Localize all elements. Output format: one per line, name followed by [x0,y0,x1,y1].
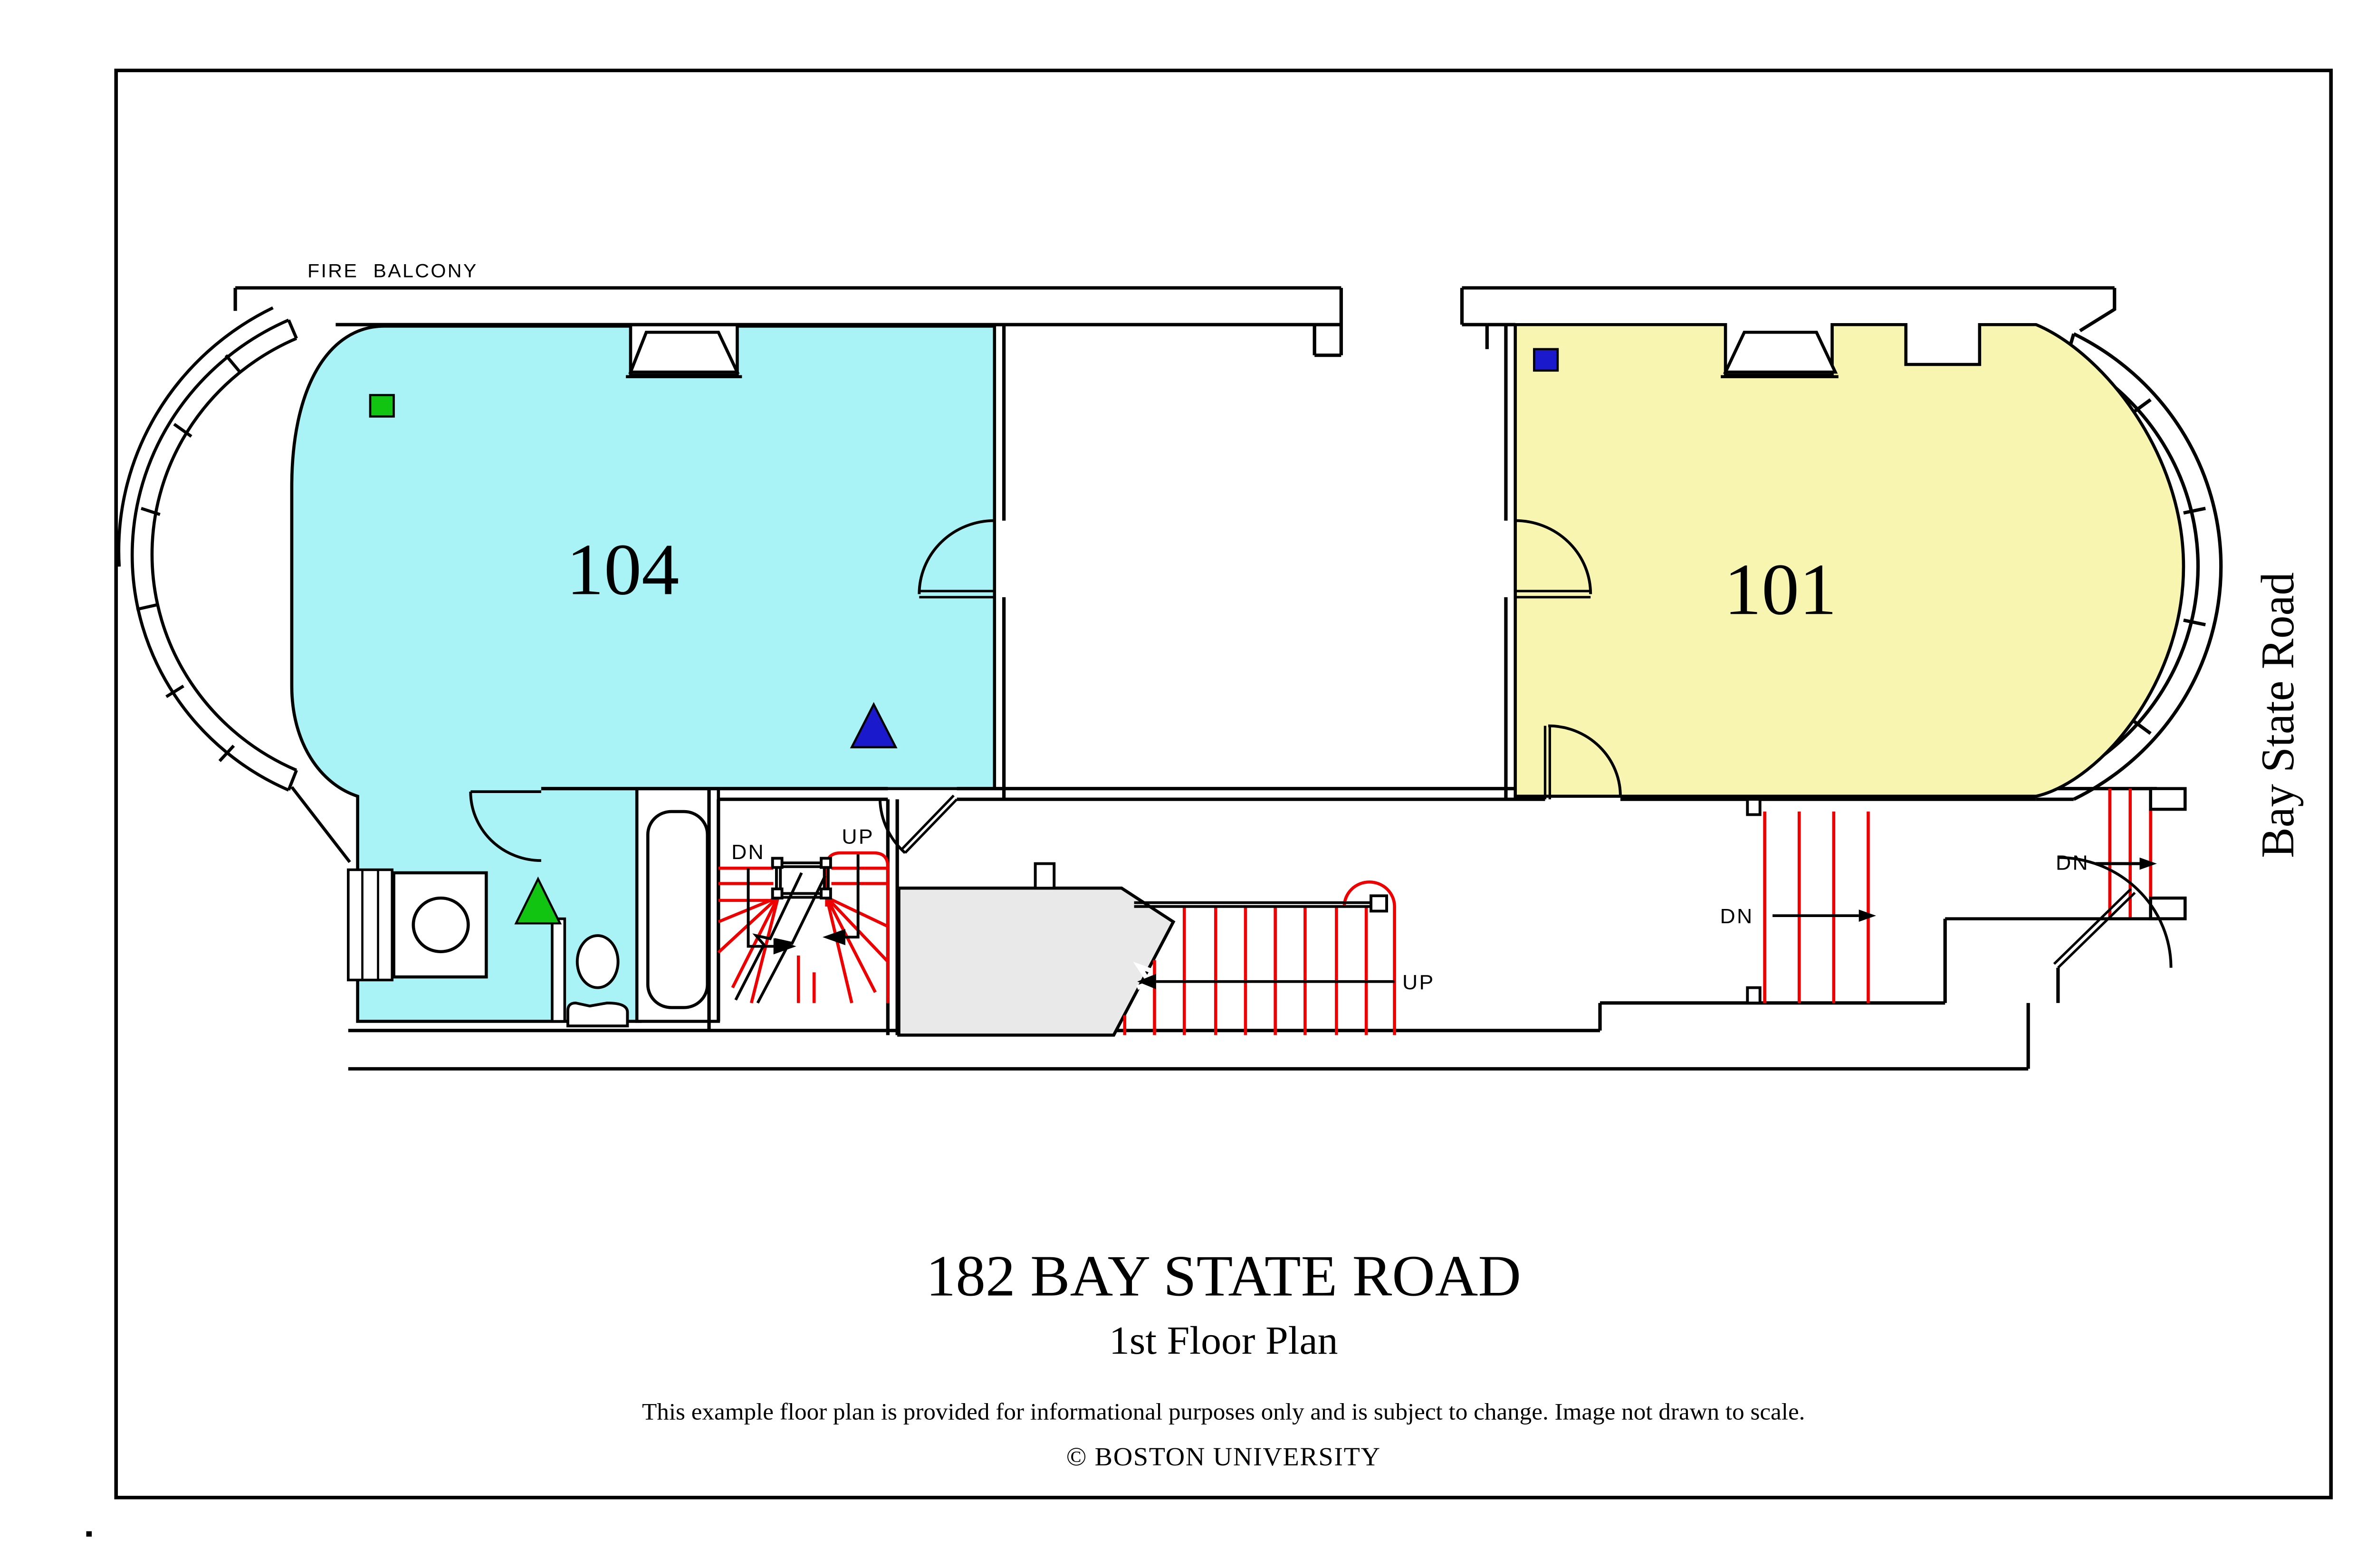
floor-plan-drawing: 104 FIRE BALCONY [0,0,2376,1568]
stray-dot [86,1531,92,1537]
disclaimer-text: This example floor plan is provided for … [642,1398,1805,1425]
copyright-text: © BOSTON UNIVERSITY [1066,1443,1381,1471]
basement-stair-dn: DN [1720,799,1876,1003]
main-stair-dn-label: DN [731,841,765,863]
room-101-label: 101 [1724,548,1837,630]
marker-blue-square [1534,349,1558,371]
entry-dn-label: DN [2056,851,2089,874]
floor-plan-sheet: { "title_block": { "address": "182 BAY S… [0,0,2376,1568]
fireplace-104 [626,332,742,376]
main-stair-up-label: UP [842,825,874,848]
room-104-label: 104 [566,528,680,610]
long-stair-up-label: UP [1402,971,1435,994]
front-entry: DN [1945,789,2185,1003]
basement-dn-label: DN [1720,905,1754,928]
fireplace-101 [1721,332,1839,376]
fire-balcony-label: FIRE BALCONY [307,260,478,281]
marker-green-square [370,395,394,416]
landing [899,864,1173,1035]
title-address: 182 BAY STATE ROAD [926,1244,1521,1308]
room-101-floor [1515,325,2184,796]
long-stair-up: UP [1125,882,1435,1035]
street-label: Bay State Road [2252,572,2304,858]
title-floor: 1st Floor Plan [1109,1319,1338,1363]
